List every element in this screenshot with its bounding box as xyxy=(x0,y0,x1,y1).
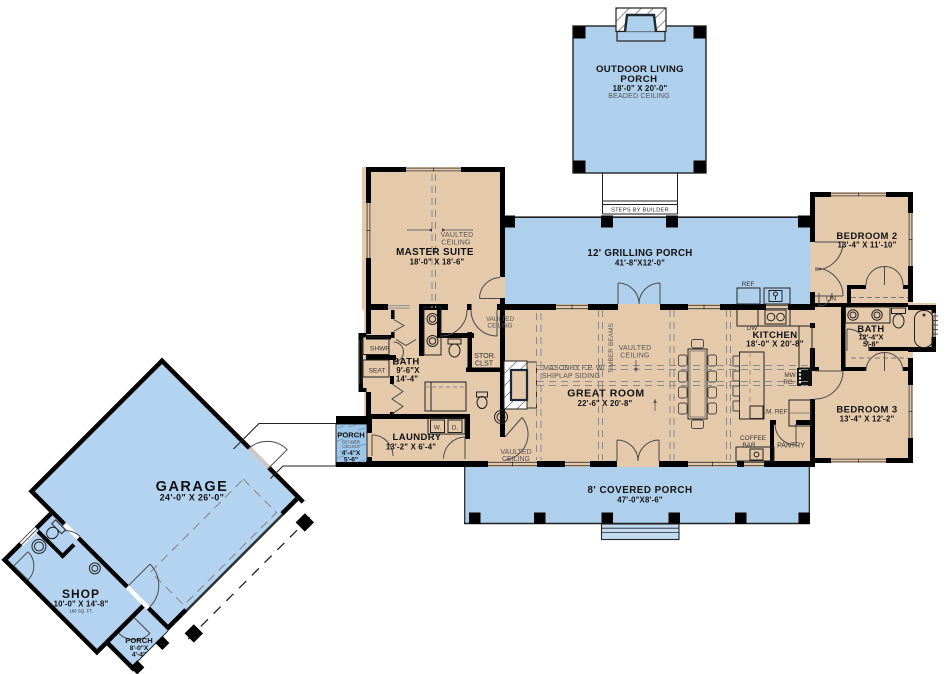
svg-text:VAULTED: VAULTED xyxy=(500,449,531,456)
svg-text:COFFEE: COFFEE xyxy=(740,435,766,442)
svg-text:SEAT: SEAT xyxy=(369,368,386,375)
svg-text:BAR: BAR xyxy=(742,442,756,449)
svg-text:VAULTED: VAULTED xyxy=(619,345,652,352)
svg-text:VAULTED: VAULTED xyxy=(441,232,474,239)
svg-text:18'-0" X 20'-0": 18'-0" X 20'-0" xyxy=(613,84,668,93)
svg-text:GREAT ROOM: GREAT ROOM xyxy=(567,388,645,400)
svg-text:LAUNDRY: LAUNDRY xyxy=(393,432,442,443)
svg-text:12' GRILLING PORCH: 12' GRILLING PORCH xyxy=(587,248,692,259)
svg-text:47'-0"X8'-6": 47'-0"X8'-6" xyxy=(617,496,663,505)
svg-text:CEILING: CEILING xyxy=(620,353,649,360)
svg-text:REF: REF xyxy=(742,281,755,288)
svg-text:BEADED CEILING: BEADED CEILING xyxy=(608,93,670,100)
svg-text:CEILING: CEILING xyxy=(441,240,470,247)
svg-text:PORCH: PORCH xyxy=(125,636,152,645)
svg-text:TIMBER BEAMS: TIMBER BEAMS xyxy=(608,323,615,373)
svg-text:MASONRY F.P. W/: MASONRY F.P. W/ xyxy=(543,365,605,372)
svg-text:LIN: LIN xyxy=(826,296,836,303)
svg-text:MW: MW xyxy=(784,372,796,379)
svg-text:14'-4": 14'-4" xyxy=(396,375,418,384)
svg-text:PORCH: PORCH xyxy=(337,431,364,440)
svg-text:189 SQ. FT.: 189 SQ. FT. xyxy=(69,609,92,614)
svg-text:CEILING: CEILING xyxy=(502,456,530,463)
svg-text:D.: D. xyxy=(452,425,459,432)
svg-text:24'-0" X 26'-0": 24'-0" X 26'-0" xyxy=(160,493,225,503)
svg-text:13'-2" X 6'-4": 13'-2" X 6'-4" xyxy=(386,443,436,452)
svg-text:4'-4": 4'-4" xyxy=(132,652,146,659)
svg-text:RG.: RG. xyxy=(783,379,795,386)
svg-text:CLST: CLST xyxy=(475,359,494,368)
svg-text:8' COVERED PORCH: 8' COVERED PORCH xyxy=(587,485,692,496)
svg-text:STEPS BY BUILDER: STEPS BY BUILDER xyxy=(611,208,669,214)
svg-text:DW: DW xyxy=(747,325,759,332)
svg-text:W.: W. xyxy=(434,425,442,432)
svg-text:10'-0" X 14'-8": 10'-0" X 14'-8" xyxy=(54,600,109,609)
svg-text:I.M. REF: I.M. REF xyxy=(762,409,787,416)
svg-text:CEILING: CEILING xyxy=(342,444,360,449)
svg-text:22'-6" X 20'-8": 22'-6" X 20'-8" xyxy=(578,399,633,408)
svg-text:5'-8": 5'-8" xyxy=(863,340,879,349)
svg-text:CEILING: CEILING xyxy=(487,323,512,330)
svg-text:PANTRY: PANTRY xyxy=(777,443,805,450)
svg-text:SHWR: SHWR xyxy=(370,346,390,353)
svg-text:5'-6": 5'-6" xyxy=(344,457,358,464)
svg-text:18'-0" X 20'-8": 18'-0" X 20'-8" xyxy=(746,340,804,349)
svg-text:MASTER SUITE: MASTER SUITE xyxy=(396,247,474,258)
svg-text:41'-8"X12'-0": 41'-8"X12'-0" xyxy=(615,259,665,268)
svg-text:13'-4" X 12'-2": 13'-4" X 12'-2" xyxy=(840,415,895,424)
svg-text:SHIPLAP SIDING: SHIPLAP SIDING xyxy=(542,373,600,380)
svg-text:18'-0" X 18'-6": 18'-0" X 18'-6" xyxy=(410,258,465,267)
svg-text:13'-4" X 11'-10": 13'-4" X 11'-10" xyxy=(838,241,897,250)
